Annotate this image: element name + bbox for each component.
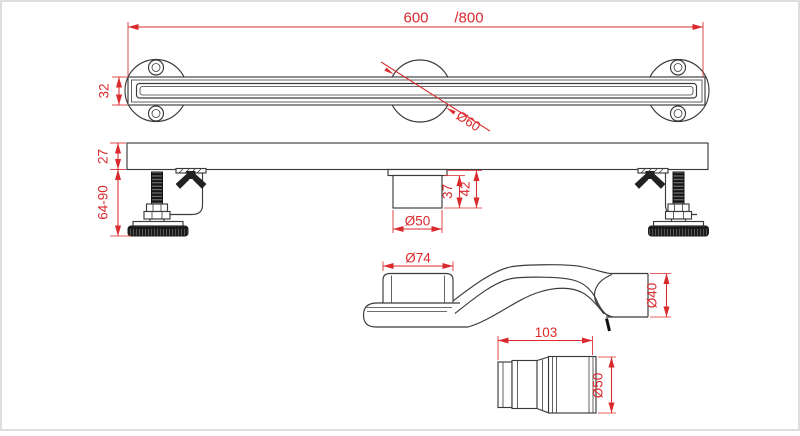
dim-trap-inlet-dia-label: Ø74	[405, 251, 431, 266]
dimension-outlet-depths: 37 42	[440, 171, 482, 209]
trap-s-curve	[453, 265, 648, 331]
wing-nut	[635, 174, 648, 189]
dim-feet-range-label: 64-90	[96, 185, 111, 220]
dim-length-alt-label: /800	[454, 10, 483, 27]
weld-tick	[607, 319, 610, 332]
wing-nut	[176, 174, 189, 189]
dim-outlet-depth-label: 37	[440, 184, 455, 199]
side-view: 27 64-90 37 42 Ø50	[96, 143, 709, 236]
threaded-rod	[673, 172, 684, 205]
trap-base-plate	[364, 303, 469, 327]
threaded-rod	[152, 172, 163, 205]
connector-body	[498, 357, 596, 414]
dim-length-label: 600	[403, 10, 428, 27]
trap-view: Ø74 Ø40	[364, 251, 672, 332]
dim-connector-length-label: 103	[535, 325, 558, 340]
technical-drawing-canvas: 600 /800 32 Ø60	[0, 0, 800, 431]
dimension-top-height: 32	[97, 77, 128, 105]
dim-trap-pipe-dia-label: Ø40	[645, 283, 660, 309]
dimension-trap-inlet-dia: Ø74	[383, 251, 453, 272]
trap-inlet-stub	[383, 274, 453, 304]
dimension-body-height: 27 64-90	[96, 143, 132, 236]
drain-body	[127, 143, 708, 170]
foot-disc	[649, 226, 709, 236]
foot-disc	[128, 226, 188, 236]
dimension-length: 600 /800	[128, 10, 703, 77]
dimension-connector-length: 103	[498, 325, 593, 360]
dim-top-height-label: 32	[97, 83, 112, 98]
connector-view: 103 Ø50	[498, 325, 616, 413]
dim-body-height-label: 27	[96, 149, 111, 164]
drawing-svg: 600 /800 32 Ø60	[0, 0, 800, 431]
drain-channel	[128, 77, 705, 105]
right-foot	[635, 169, 709, 237]
outlet-pipe	[388, 170, 447, 209]
left-foot	[128, 169, 206, 237]
top-view: 600 /800 32 Ø60	[97, 10, 710, 135]
dim-outlet-height-label: 42	[458, 181, 473, 196]
dim-outlet-dia-label: Ø50	[405, 214, 431, 229]
dim-center-dia-label: Ø60	[454, 108, 484, 134]
dimension-outlet-dia: Ø50	[393, 210, 442, 233]
dim-connector-dia-label: Ø50	[591, 373, 606, 399]
